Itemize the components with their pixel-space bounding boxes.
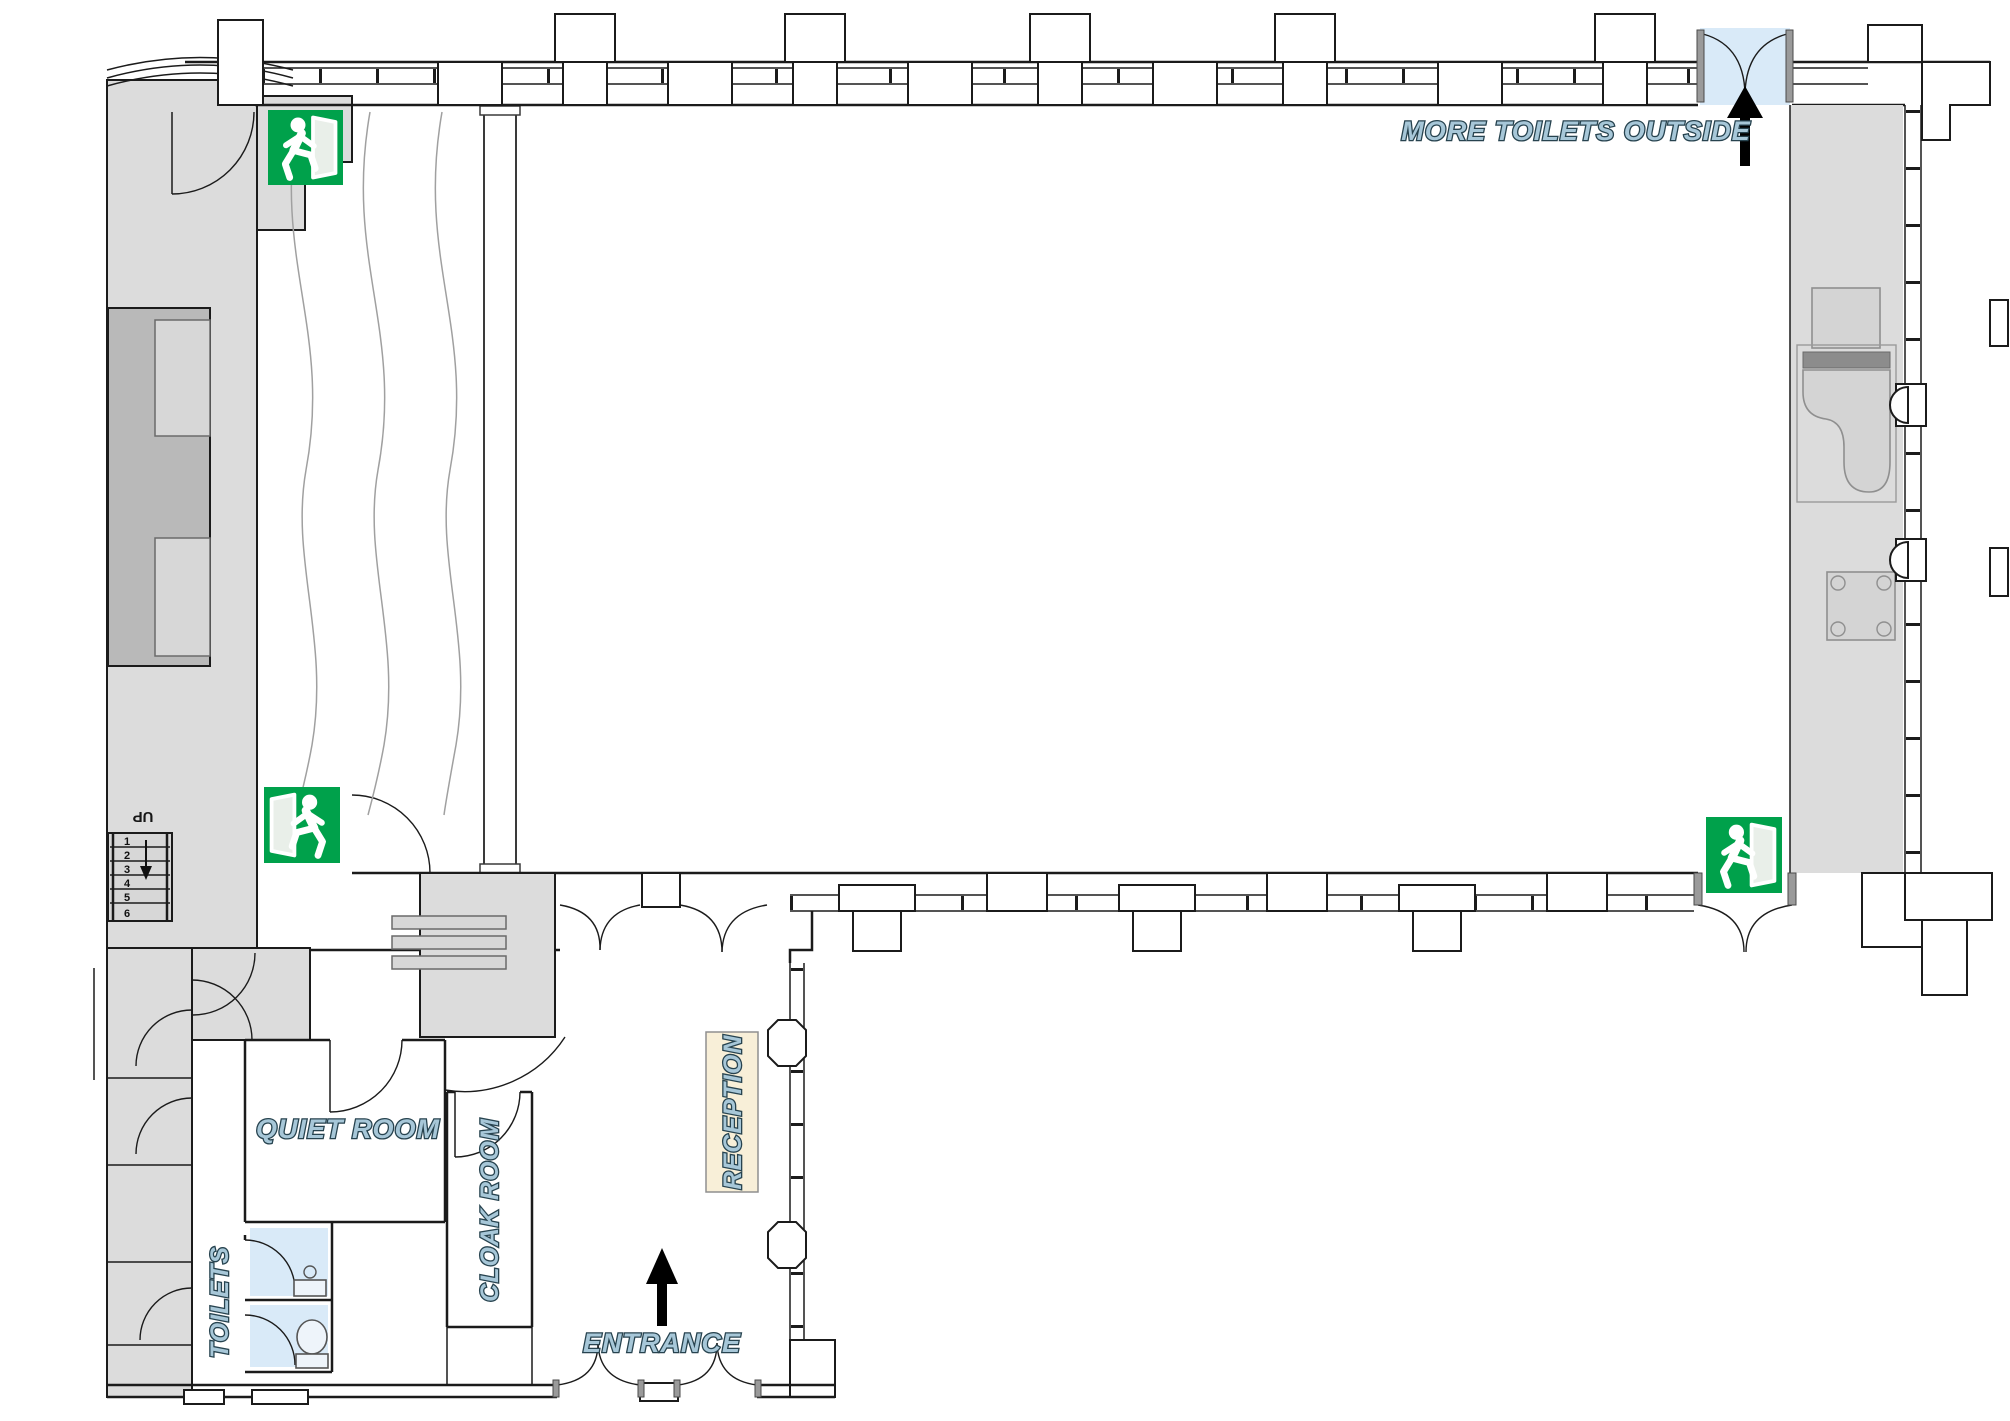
column-bay xyxy=(768,1222,806,1268)
hall-right-wall xyxy=(1890,105,2008,873)
column-bay xyxy=(768,1020,806,1066)
stair-step-number: 6 xyxy=(124,908,130,920)
stage-wing xyxy=(94,58,430,1081)
piano-keyboard xyxy=(1803,352,1890,368)
floor-plan-page: MORE TOILETS OUTSIDE xyxy=(0,0,2010,1421)
stairs-middle xyxy=(392,916,506,969)
label-quiet-room: QUIET ROOM xyxy=(256,1114,440,1144)
label-more-toilets-outside: MORE TOILETS OUTSIDE xyxy=(1401,116,1751,146)
toilet xyxy=(296,1320,328,1368)
floor-plan: MORE TOILETS OUTSIDE xyxy=(0,0,2010,1421)
lower-wing: RECEPTION xyxy=(107,873,835,1404)
entrance-marker: ENTRANCE xyxy=(583,1248,741,1358)
label-reception: RECEPTION xyxy=(719,1035,747,1190)
bottom-right-corner-piers xyxy=(1862,873,1992,995)
wall-niche xyxy=(1890,384,1926,426)
door-leaf-arc xyxy=(1698,905,1744,952)
door-leaf-arc xyxy=(680,905,722,952)
stage-edge xyxy=(480,106,520,873)
lower-right-wall xyxy=(768,911,835,1397)
piano-bench xyxy=(1812,288,1880,348)
emergency-exit-sign-icon xyxy=(268,110,343,185)
top-right-corner-pier xyxy=(1922,62,1990,140)
door-swing-arc xyxy=(330,1040,402,1112)
toilets-block xyxy=(245,1222,332,1372)
label-stairs-up: UP xyxy=(133,808,154,825)
door-leaf-arc xyxy=(600,905,640,950)
right-platform xyxy=(1790,105,1903,873)
wall-niche xyxy=(1890,539,1926,581)
door-leaf-arc xyxy=(1746,905,1792,952)
stage-curtains xyxy=(291,112,460,815)
entrance-up-arrow-icon xyxy=(646,1248,678,1284)
emergency-exit-sign-icon xyxy=(264,787,340,863)
stair-block xyxy=(420,873,555,1037)
square-table xyxy=(1827,572,1895,640)
door-swing-arc xyxy=(445,1037,565,1092)
door-leaf-arc xyxy=(722,905,767,952)
emergency-exit-sign-icon xyxy=(1706,817,1782,893)
stair-step-number: 3 xyxy=(124,864,130,876)
label-cloak-room: CLOAK ROOM xyxy=(476,1118,504,1302)
entrance-threshold xyxy=(640,1383,678,1401)
label-toilets: TOILETS xyxy=(206,1246,234,1358)
stair-step-number: 1 xyxy=(124,836,130,848)
side-rooms xyxy=(107,948,192,1397)
reception-desk: RECEPTION xyxy=(706,1032,758,1192)
stair-step-number: 4 xyxy=(124,878,131,890)
door-leaf-arc xyxy=(560,905,600,950)
door-swing-arc xyxy=(352,795,430,873)
stair-step-number: 2 xyxy=(124,850,130,862)
bottom-wall-small-piers xyxy=(987,873,1607,911)
label-entrance: ENTRANCE xyxy=(583,1328,741,1358)
stair-step-number: 5 xyxy=(124,892,130,904)
